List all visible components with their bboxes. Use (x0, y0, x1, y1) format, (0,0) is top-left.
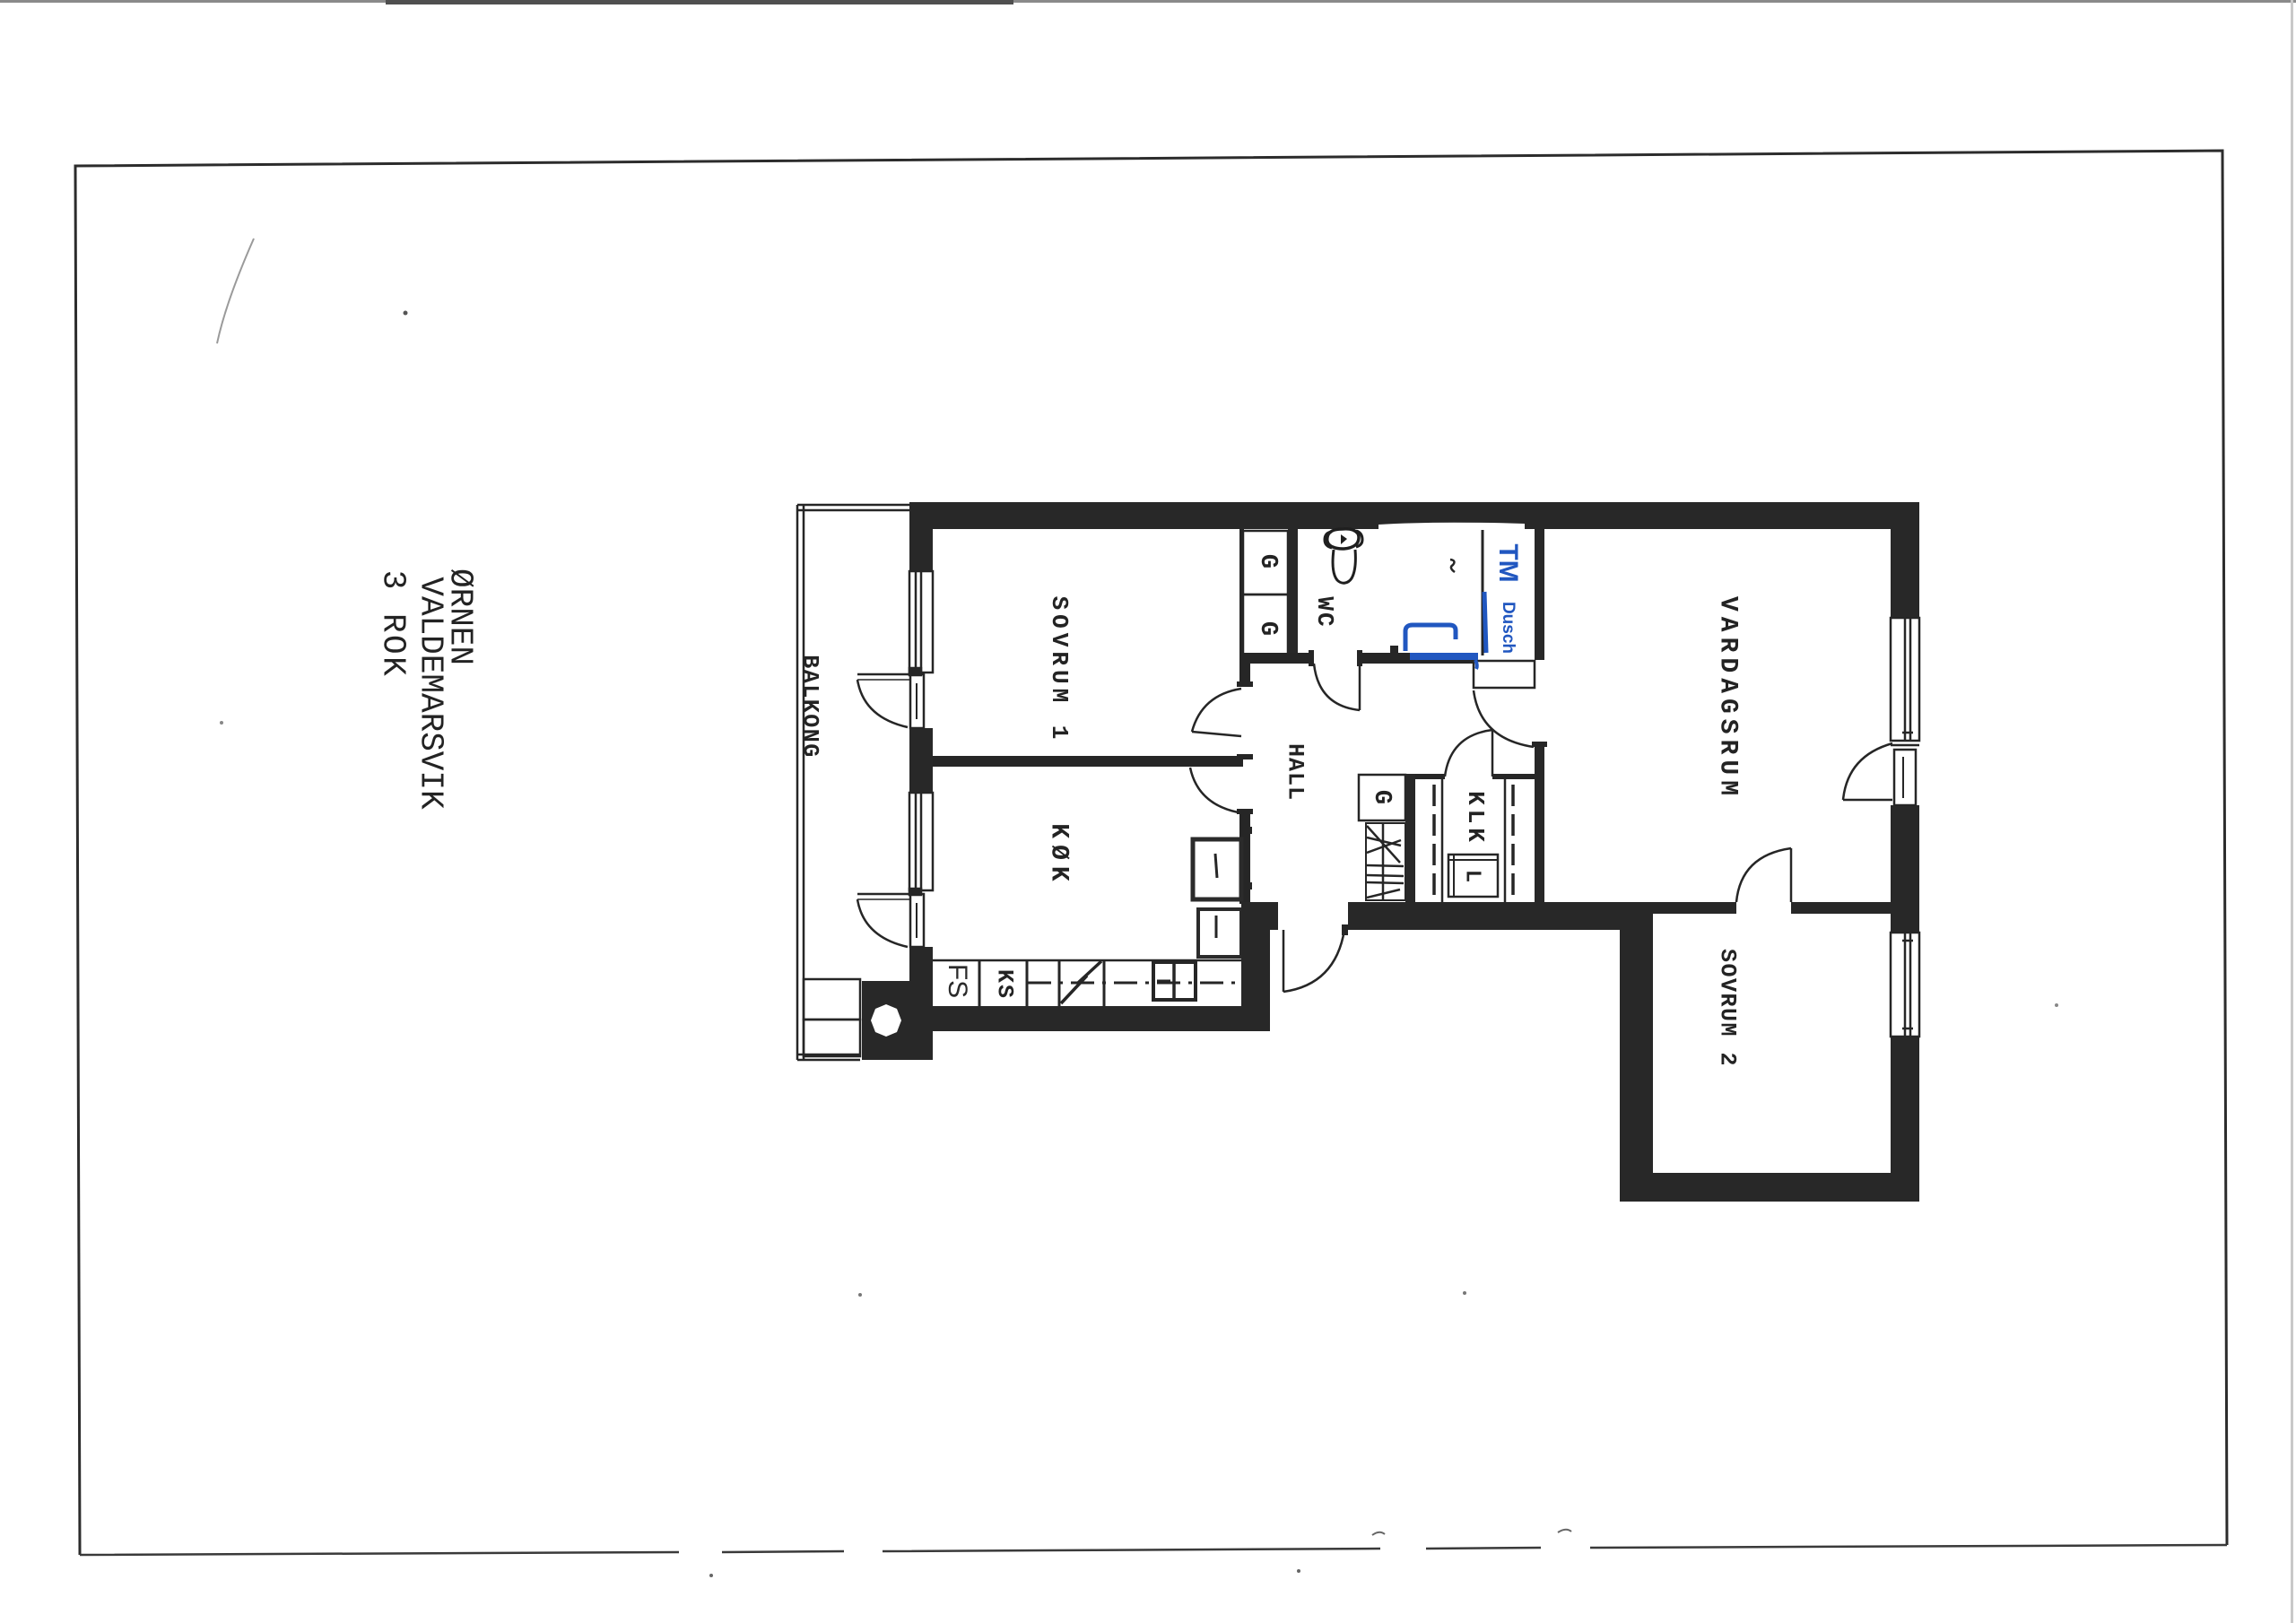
svg-text:VALDEMARSVIK: VALDEMARSVIK (412, 577, 448, 810)
svg-text:G: G (1368, 790, 1395, 804)
svg-text:TM: TM (1493, 543, 1523, 582)
svg-text:3 ROK: 3 ROK (374, 570, 411, 679)
svg-text:VARDAGSRUM: VARDAGSRUM (1714, 596, 1742, 801)
svg-text:SOVRUM 2: SOVRUM 2 (1714, 949, 1740, 1067)
svg-text:SOVRUM 1: SOVRUM 1 (1046, 596, 1073, 744)
svg-text:KS: KS (991, 969, 1017, 1000)
svg-text:L: L (1460, 870, 1484, 882)
svg-text:BALKONG: BALKONG (796, 655, 822, 759)
svg-text:KLK: KLK (1462, 791, 1489, 846)
svg-text:G: G (1254, 621, 1281, 636)
svg-text:WC: WC (1311, 596, 1338, 628)
svg-text:HALL: HALL (1282, 743, 1308, 801)
svg-text:G: G (1254, 554, 1281, 568)
svg-text:KØK: KØK (1045, 823, 1073, 887)
svg-text:Dusch: Dusch (1499, 602, 1518, 654)
svg-text:FS: FS (943, 964, 972, 998)
